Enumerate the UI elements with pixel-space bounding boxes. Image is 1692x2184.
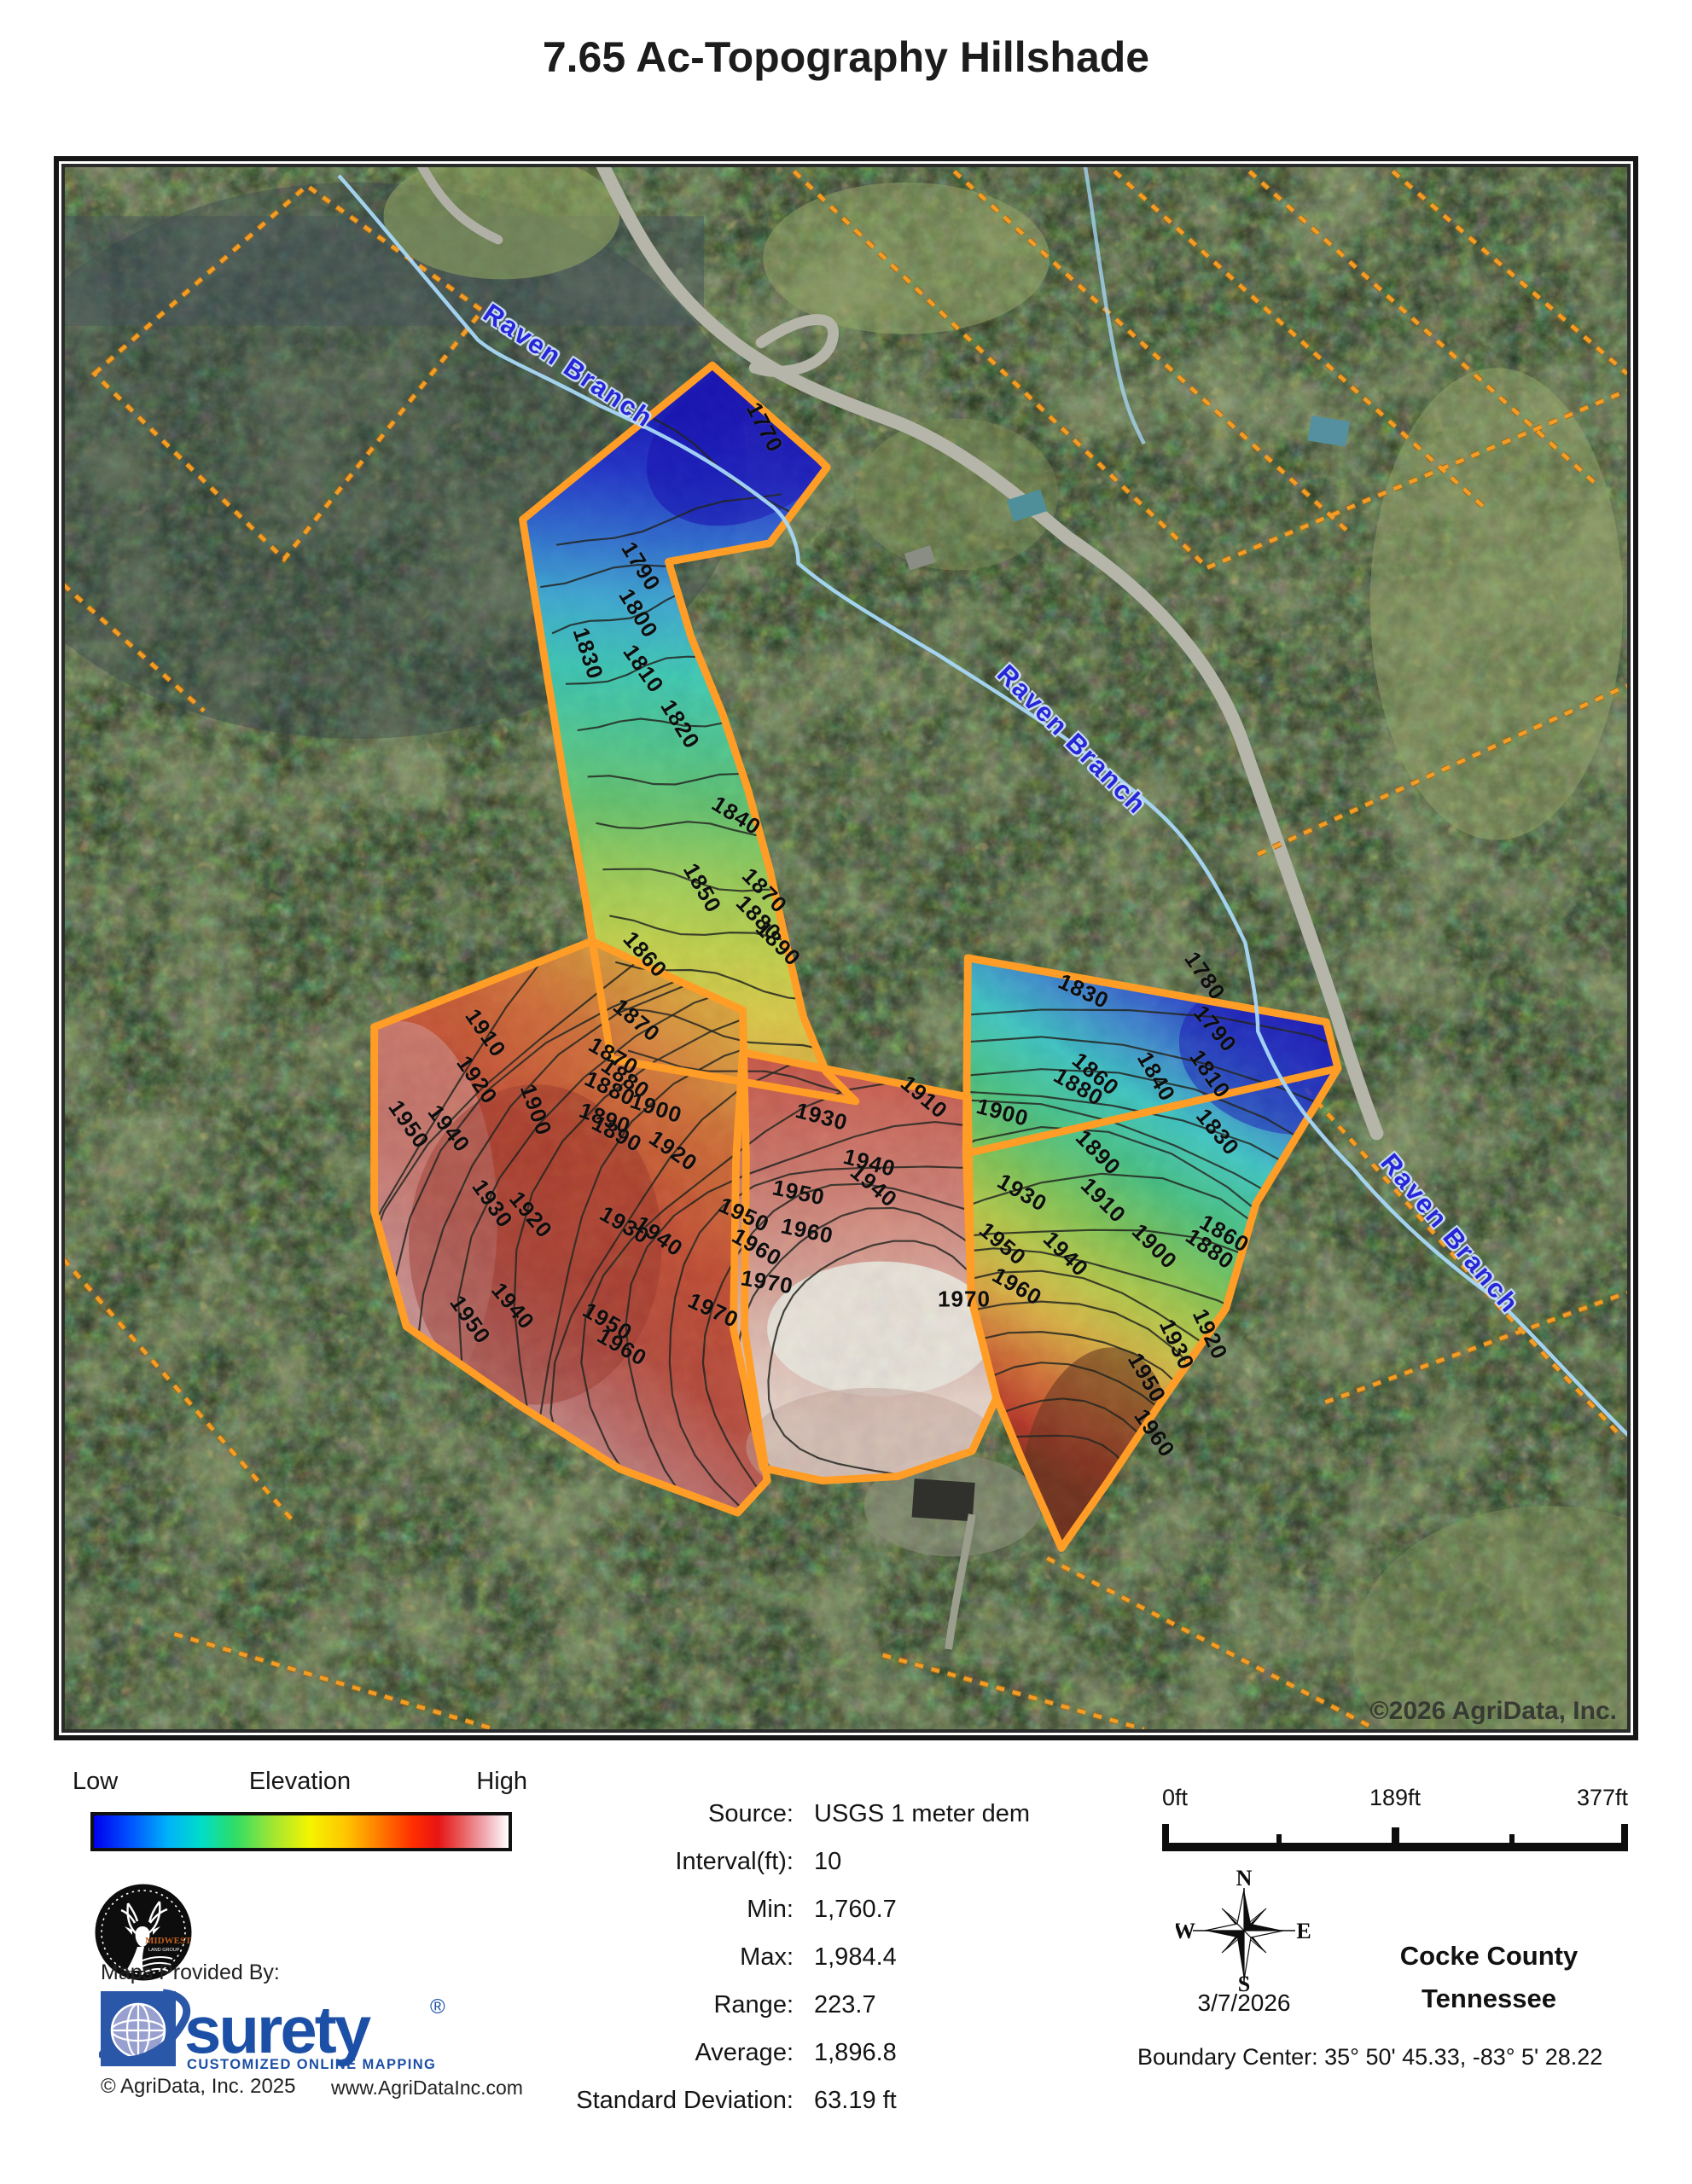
map-frame: 1770179018001830181018201840185018701880… bbox=[54, 156, 1638, 1740]
surety-wordmark: surety bbox=[184, 1992, 371, 2067]
stat-row: Range:223.7 bbox=[478, 1981, 1041, 2029]
stat-label: Interval(ft): bbox=[478, 1848, 814, 1876]
field-patch bbox=[1370, 368, 1623, 839]
stat-value: 223.7 bbox=[814, 1991, 876, 2019]
stat-label: Standard Deviation: bbox=[478, 2087, 814, 2115]
boundary-center: Boundary Center: 35° 50' 45.33, -83° 5' … bbox=[1137, 2044, 1683, 2071]
compass-e: E bbox=[1296, 1919, 1311, 1943]
stat-value: 10 bbox=[814, 1848, 841, 1876]
stat-label: Average: bbox=[478, 2039, 814, 2067]
map-date: 3/7/2026 bbox=[1167, 1989, 1321, 2017]
map-canvas: 1770179018001830181018201840185018701880… bbox=[61, 164, 1631, 1733]
stat-label: Max: bbox=[478, 1943, 814, 1972]
stat-label: Range: bbox=[478, 1991, 814, 2019]
stat-row: Standard Deviation:63.19 ft bbox=[478, 2077, 1041, 2124]
surety-tagline: CUSTOMIZED ONLINE MAPPING bbox=[187, 2057, 436, 2072]
surety-logo: surety ® CUSTOMIZED ONLINE MAPPING bbox=[99, 1984, 500, 2073]
partner-logo-name: MIDWEST bbox=[145, 1936, 192, 1946]
scale-bar: 0ft 189ft 377ft bbox=[1162, 1785, 1628, 1862]
stat-row: Average:1,896.8 bbox=[478, 2029, 1041, 2077]
scale-tick-end: 377ft bbox=[1577, 1785, 1628, 1811]
compass-cardinals bbox=[1205, 1890, 1283, 1980]
stat-row: Interval(ft):10 bbox=[478, 1838, 1041, 1885]
compass-n: N bbox=[1236, 1866, 1253, 1891]
state-name: Tennessee bbox=[1382, 1978, 1596, 2020]
stat-value: USGS 1 meter dem bbox=[814, 1800, 1030, 1828]
stat-value: 63.19 ft bbox=[814, 2087, 897, 2115]
stat-value: 1,984.4 bbox=[814, 1943, 897, 1972]
registered-mark: ® bbox=[430, 1995, 445, 2018]
scale-bar-graphic bbox=[1162, 1817, 1628, 1856]
stat-value: 1,896.8 bbox=[814, 2039, 897, 2067]
county-name: Cocke County bbox=[1382, 1935, 1596, 1978]
elevation-gradient-bar bbox=[90, 1812, 512, 1851]
scale-tick-mid: 189ft bbox=[1162, 1785, 1628, 1811]
report-page: 7.65 Ac-Topography Hillshade bbox=[0, 0, 1692, 2184]
elevation-stats: Source:USGS 1 meter demInterval(ft):10Mi… bbox=[478, 1790, 1041, 2124]
stat-row: Source:USGS 1 meter dem bbox=[478, 1790, 1041, 1838]
stat-value: 1,760.7 bbox=[814, 1896, 897, 1924]
maps-provided-by-label: Maps Provided By: bbox=[101, 1960, 280, 1985]
county-state: Cocke County Tennessee bbox=[1382, 1935, 1596, 2020]
page-title: 7.65 Ac-Topography Hillshade bbox=[0, 32, 1692, 82]
stat-label: Source: bbox=[478, 1800, 814, 1828]
compass-w: W bbox=[1176, 1919, 1195, 1943]
house bbox=[912, 1478, 975, 1521]
map-copyright-watermark: ©2026 AgriData, Inc. bbox=[1370, 1697, 1617, 1726]
compass-rose-icon: N S W E bbox=[1176, 1862, 1312, 1998]
legend-title: Elevation bbox=[73, 1768, 527, 1796]
stat-row: Min:1,760.7 bbox=[478, 1885, 1041, 1933]
stat-label: Min: bbox=[478, 1896, 814, 1924]
map-artwork bbox=[63, 166, 1629, 1731]
agridata-copyright: © AgriData, Inc. 2025 bbox=[101, 2075, 295, 2099]
elevation-legend: Low Elevation High bbox=[73, 1768, 527, 1797]
field-patch bbox=[763, 183, 1050, 334]
stat-row: Max:1,984.4 bbox=[478, 1933, 1041, 1981]
partner-logo-sub: LAND GROUP bbox=[148, 1948, 180, 1953]
